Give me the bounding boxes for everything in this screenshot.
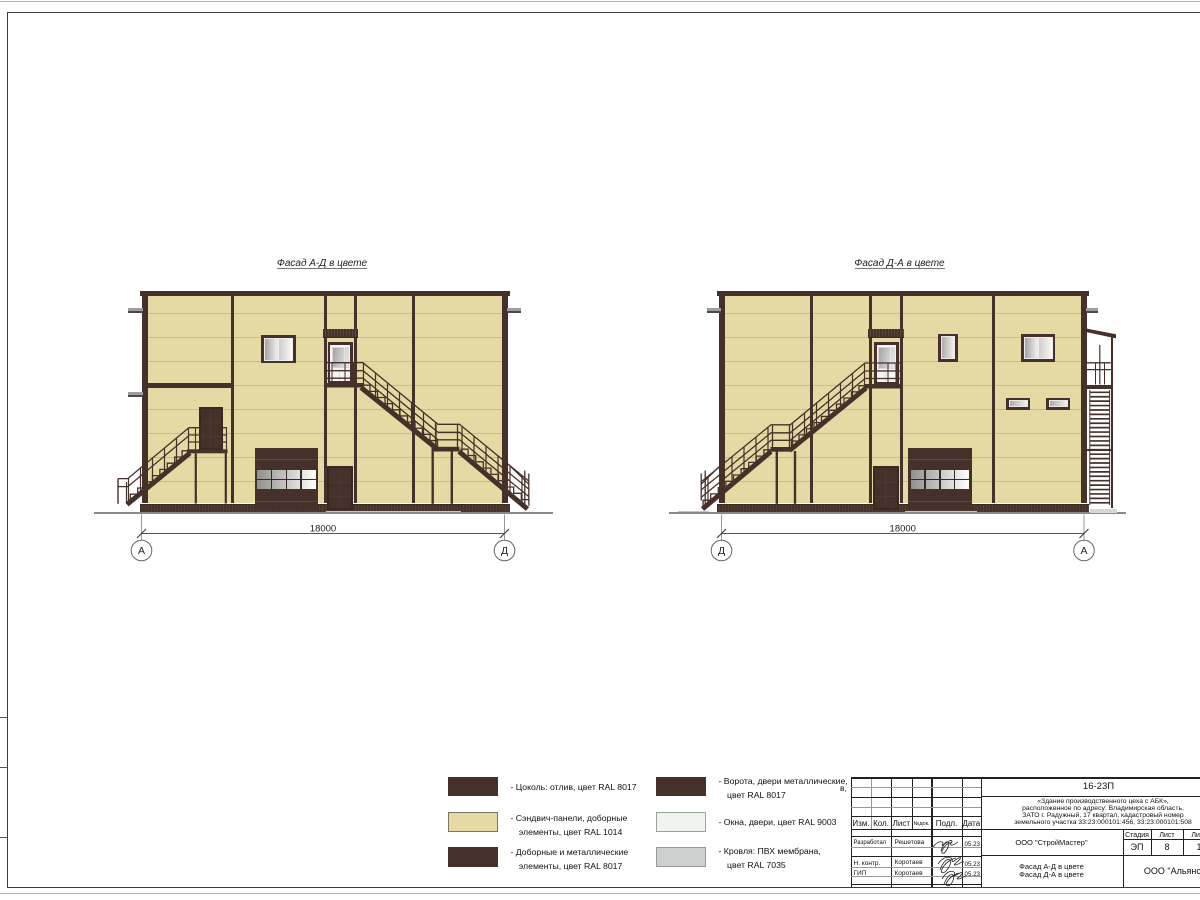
svg-text:А: А — [1080, 545, 1087, 557]
svg-text:18000: 18000 — [890, 524, 916, 535]
svg-text:18000: 18000 — [310, 524, 336, 535]
svg-text:А: А — [138, 545, 145, 557]
svg-text:Д: Д — [718, 545, 725, 557]
svg-text:Д: Д — [501, 545, 508, 557]
